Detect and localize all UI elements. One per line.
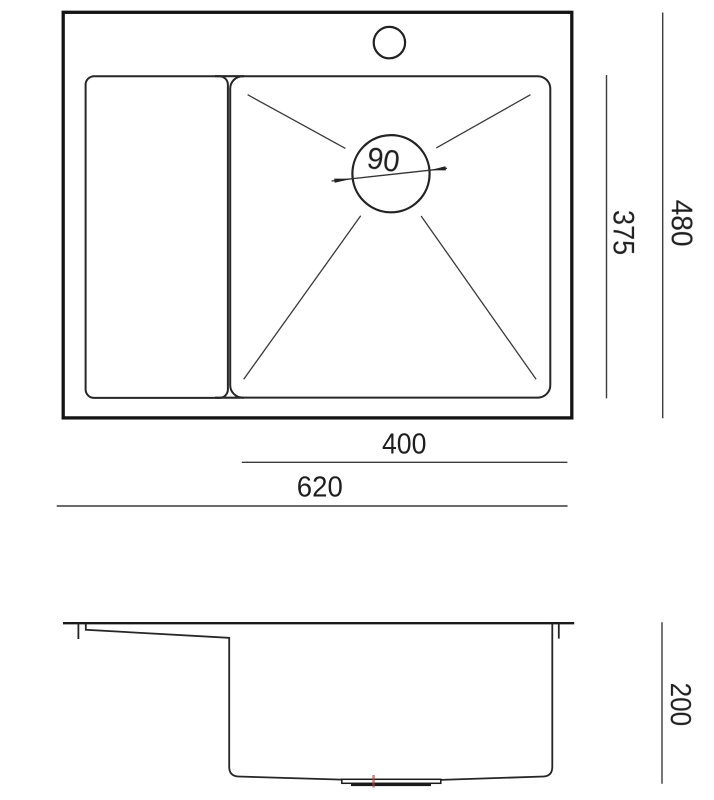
svg-text:400: 400: [382, 429, 427, 461]
svg-text:480: 480: [665, 200, 698, 247]
svg-text:90: 90: [365, 140, 402, 179]
svg-text:620: 620: [297, 472, 343, 504]
svg-text:375: 375: [607, 210, 640, 255]
svg-text:200: 200: [664, 683, 696, 727]
